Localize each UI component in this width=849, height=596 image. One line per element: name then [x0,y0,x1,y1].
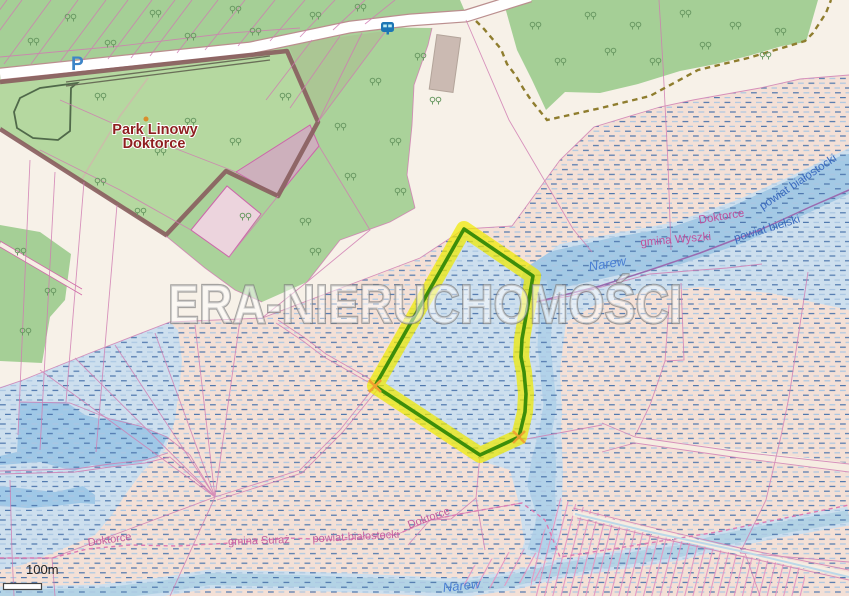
svg-text:100m: 100m [26,562,59,577]
svg-text:gmina Suraż: gmina Suraż [228,534,290,548]
svg-text:P: P [71,54,84,75]
svg-text:Doktorce: Doktorce [123,136,186,152]
svg-text:ERA-NIERUCHOMOŚCI: ERA-NIERUCHOMOŚCI [168,273,682,335]
